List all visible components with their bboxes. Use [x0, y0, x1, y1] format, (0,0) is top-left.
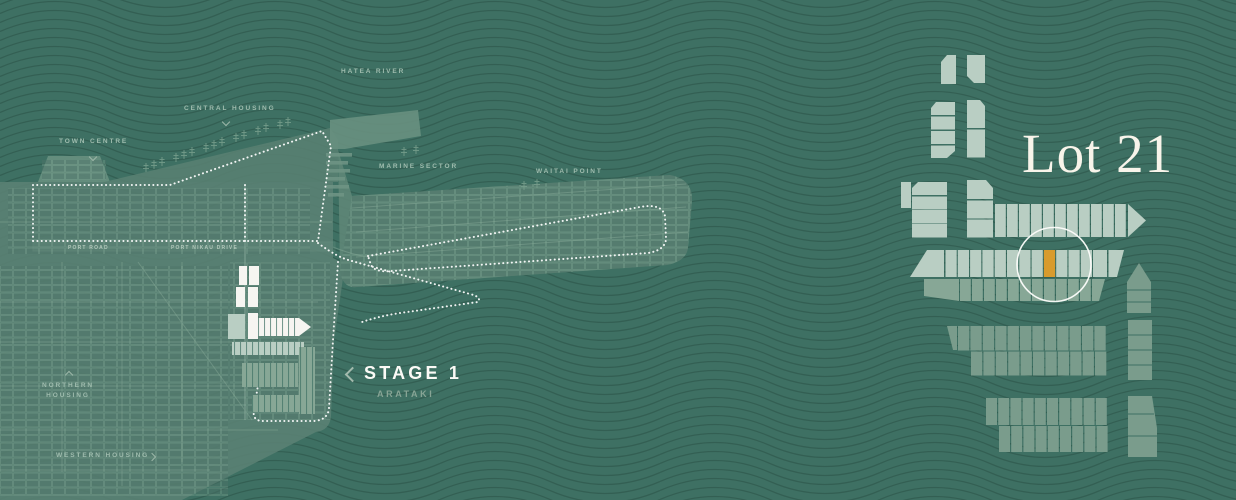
- label-northern-housing[interactable]: NORTHERN HOUSING: [26, 381, 110, 401]
- label-hatea-river: HATEA RIVER: [341, 67, 405, 77]
- site-masterplan: HATEA RIVER CENTRAL HOUSING TOWN CENTRE …: [0, 0, 1236, 500]
- label-town-centre[interactable]: TOWN CENTRE: [59, 137, 128, 147]
- label-port-nikau-drive: PORT NIKAU DRIVE: [171, 245, 238, 253]
- selected-lot-title: Lot 21: [1022, 122, 1173, 185]
- label-waitai-point: WAITAI POINT: [536, 167, 603, 177]
- label-central-housing[interactable]: CENTRAL HOUSING: [184, 104, 276, 114]
- selected-lot-21[interactable]: [1044, 250, 1055, 277]
- label-port-road: PORT ROAD: [68, 245, 109, 253]
- stage-subtitle: ARATAKI: [377, 389, 434, 399]
- label-marine-sector: MARINE SECTOR: [379, 162, 458, 172]
- stage-title[interactable]: STAGE 1: [364, 363, 462, 384]
- label-western-housing[interactable]: WESTERN HOUSING: [56, 451, 149, 461]
